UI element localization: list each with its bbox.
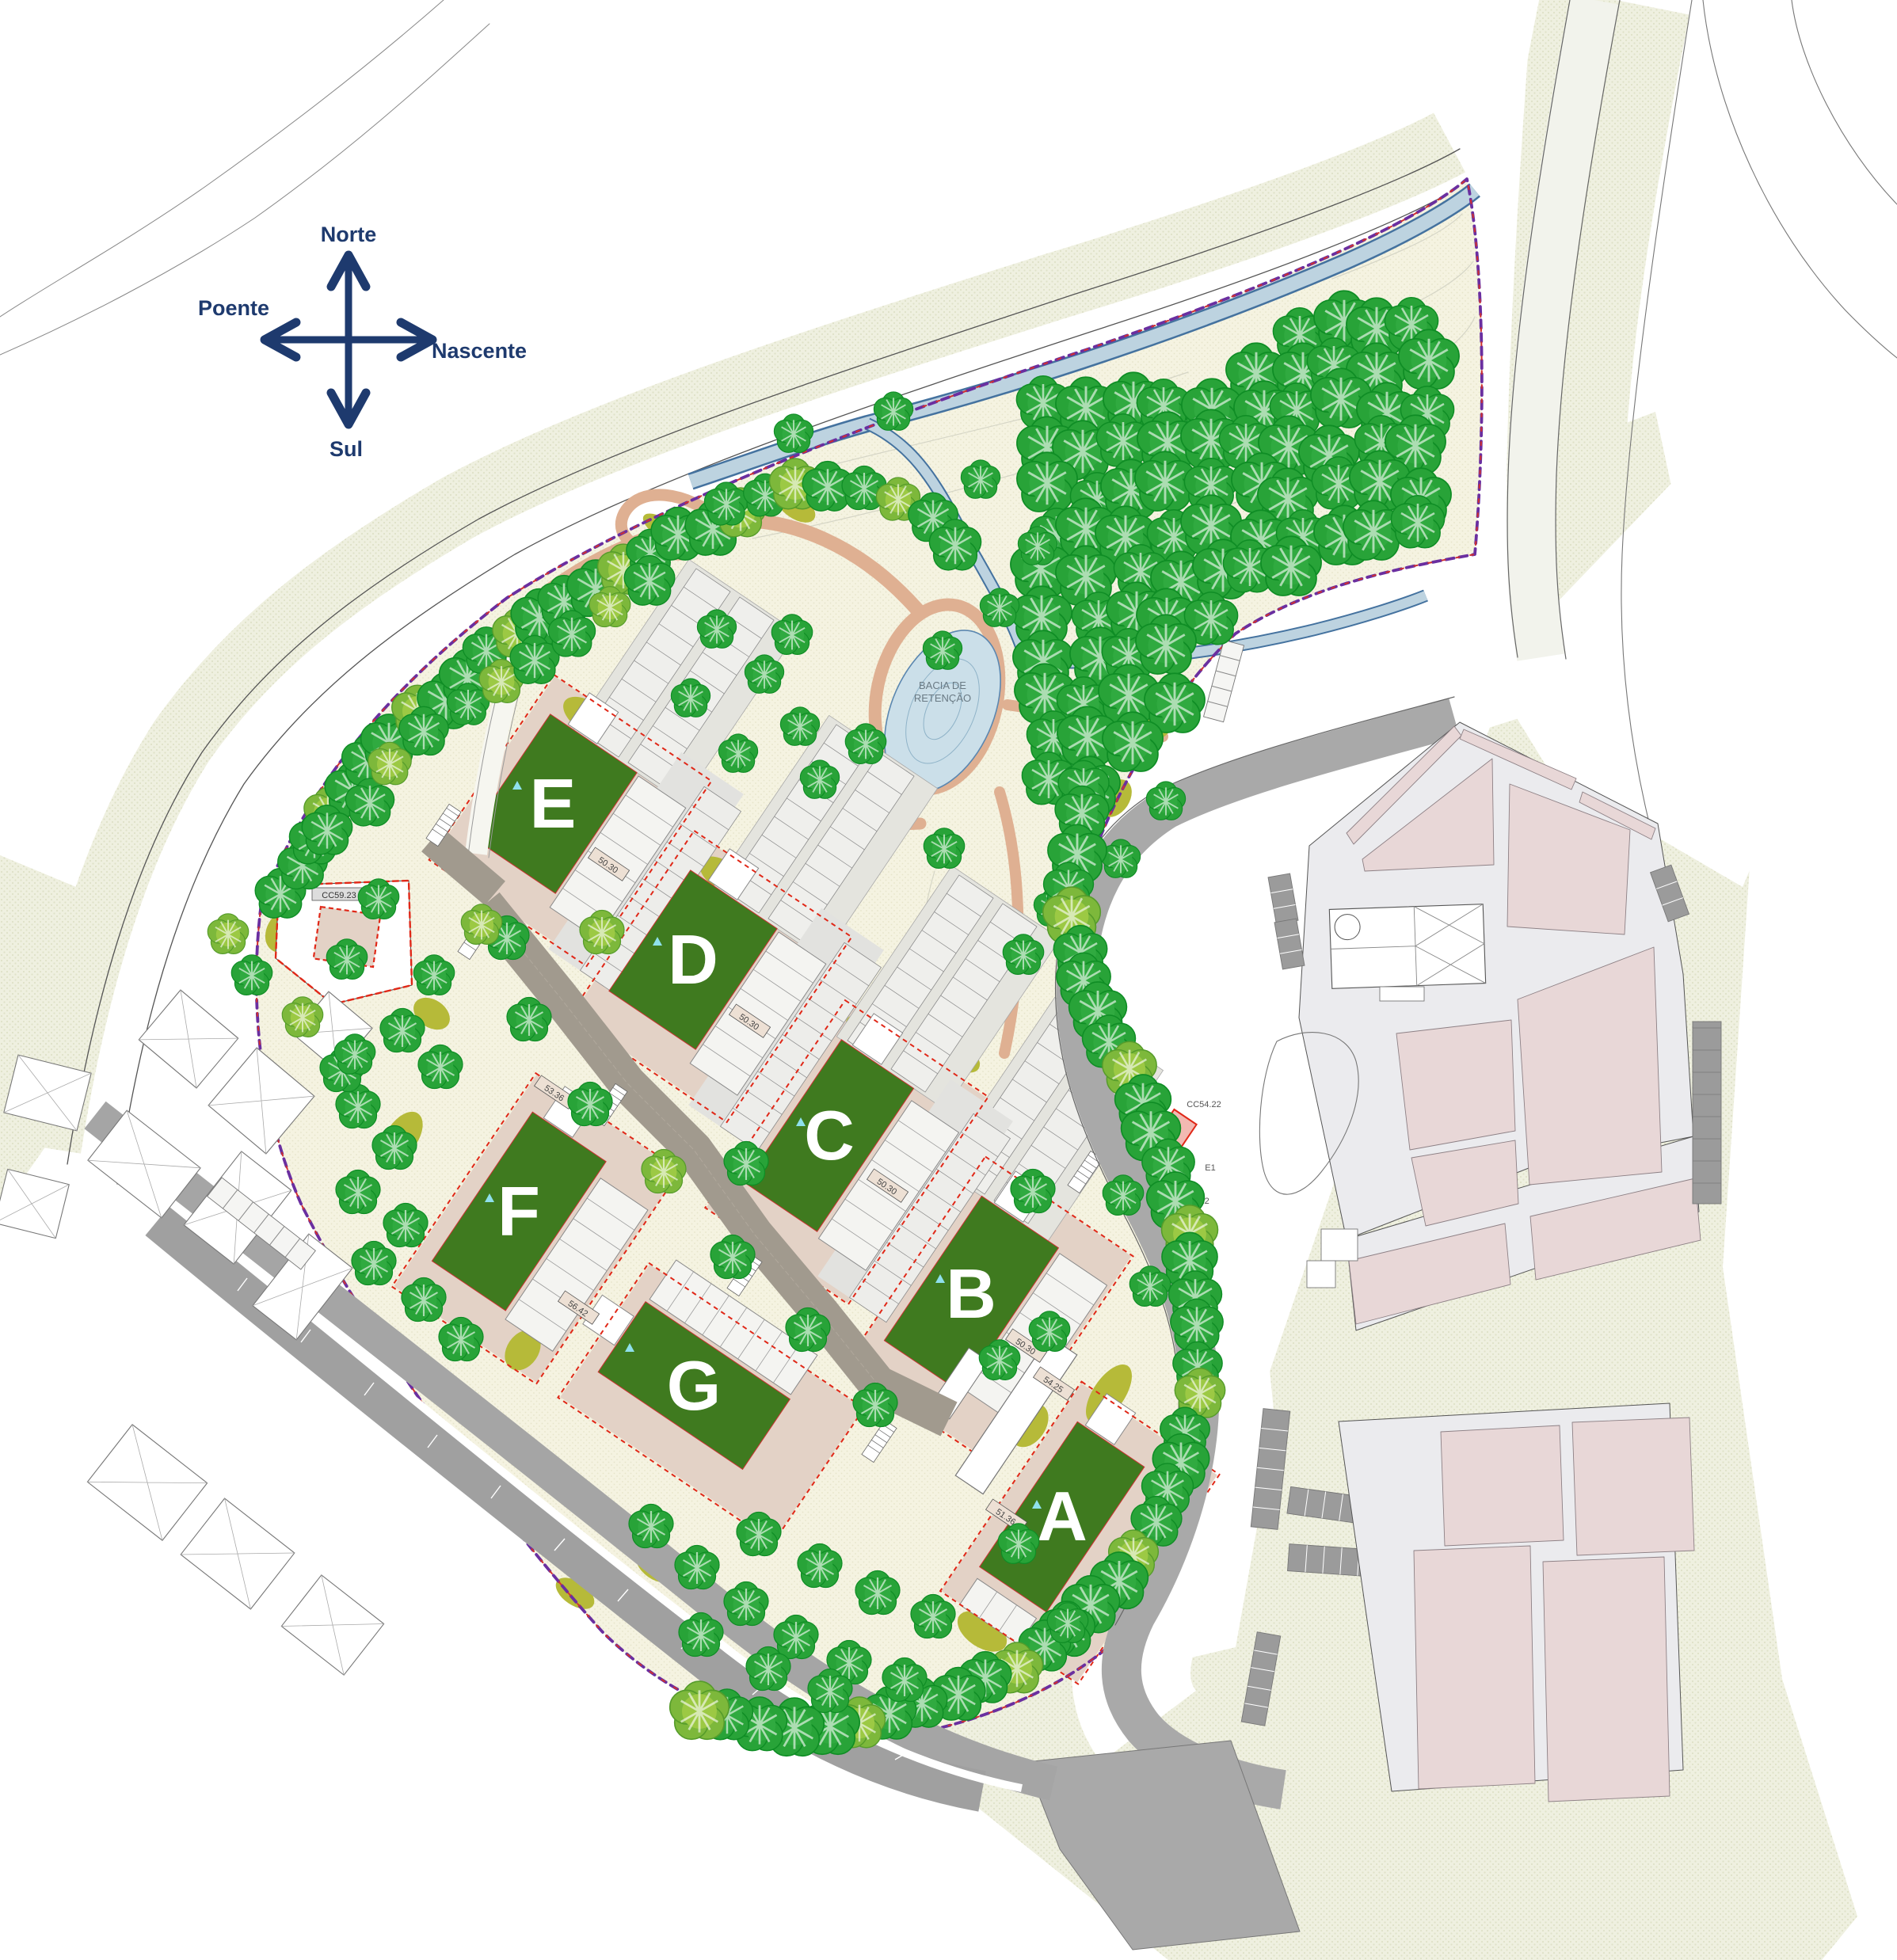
svg-text:E1: E1 (1205, 1163, 1215, 1173)
svg-text:B: B (946, 1254, 996, 1333)
svg-text:D: D (668, 920, 718, 999)
svg-text:F: F (497, 1172, 540, 1250)
svg-text:G: G (667, 1346, 721, 1425)
svg-text:CC59.23: CC59.23 (322, 891, 356, 900)
svg-text:Poente: Poente (198, 296, 269, 320)
svg-text:A: A (1037, 1477, 1088, 1555)
svg-text:BACIA DE: BACIA DE (919, 679, 966, 691)
svg-text:Norte: Norte (321, 223, 377, 246)
svg-text:RETENÇÃO: RETENÇÃO (914, 692, 971, 704)
svg-text:CC54.22: CC54.22 (1187, 1100, 1221, 1109)
svg-text:C: C (804, 1096, 855, 1174)
svg-text:Sul: Sul (329, 437, 363, 461)
svg-text:E: E (530, 764, 577, 843)
svg-text:Nascente: Nascente (432, 339, 527, 363)
